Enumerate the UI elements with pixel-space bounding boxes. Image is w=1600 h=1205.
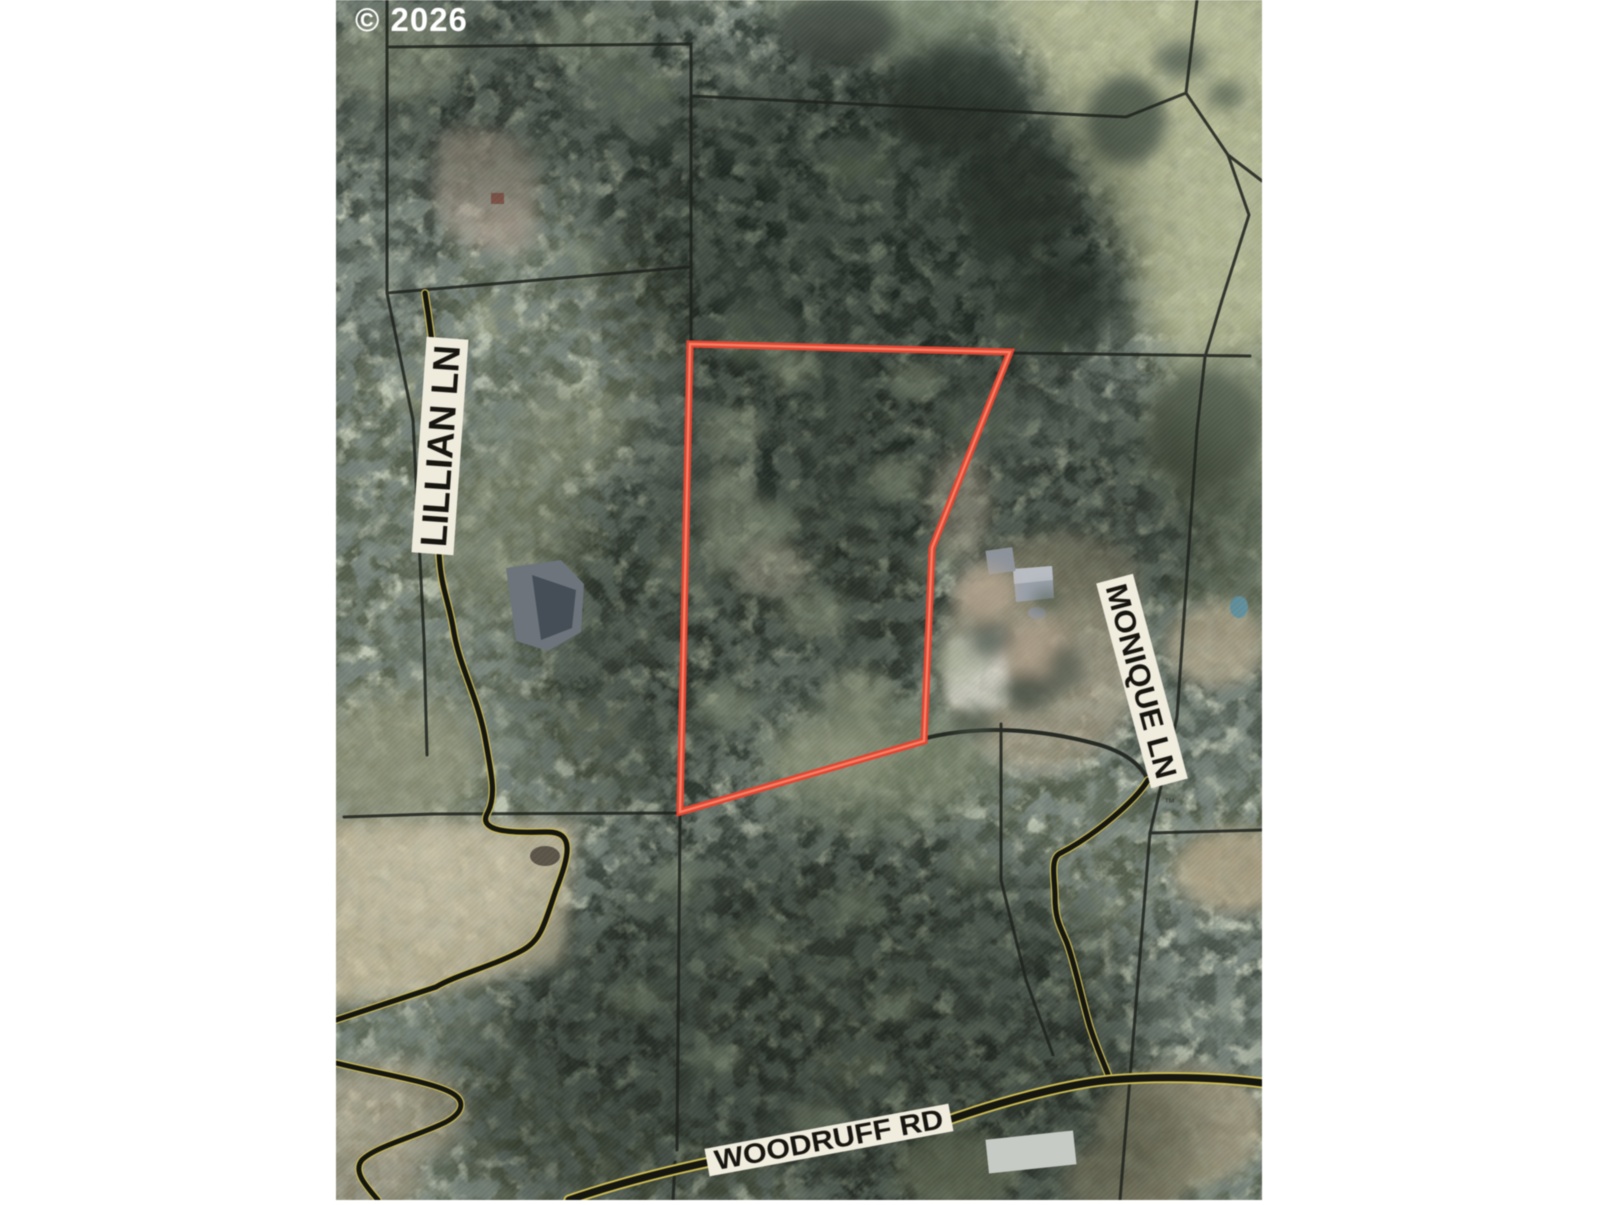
svg-text:© 2026: © 2026	[355, 1, 468, 38]
svg-text:™: ™	[1164, 797, 1175, 809]
